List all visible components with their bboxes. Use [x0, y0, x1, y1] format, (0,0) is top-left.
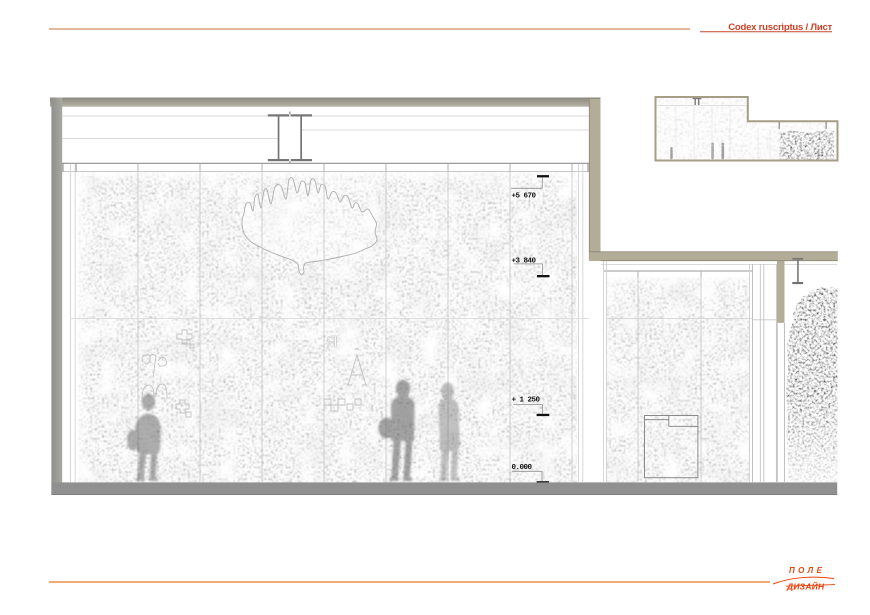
svg-text:+ 1 250: + 1 250 [512, 397, 541, 405]
svg-text:+5 670: +5 670 [512, 193, 537, 201]
svg-text:0.000: 0.000 [512, 464, 533, 472]
svg-text:ПОЛЕ: ПОЛЕ [789, 566, 825, 575]
svg-text:Я: Я [326, 334, 338, 351]
